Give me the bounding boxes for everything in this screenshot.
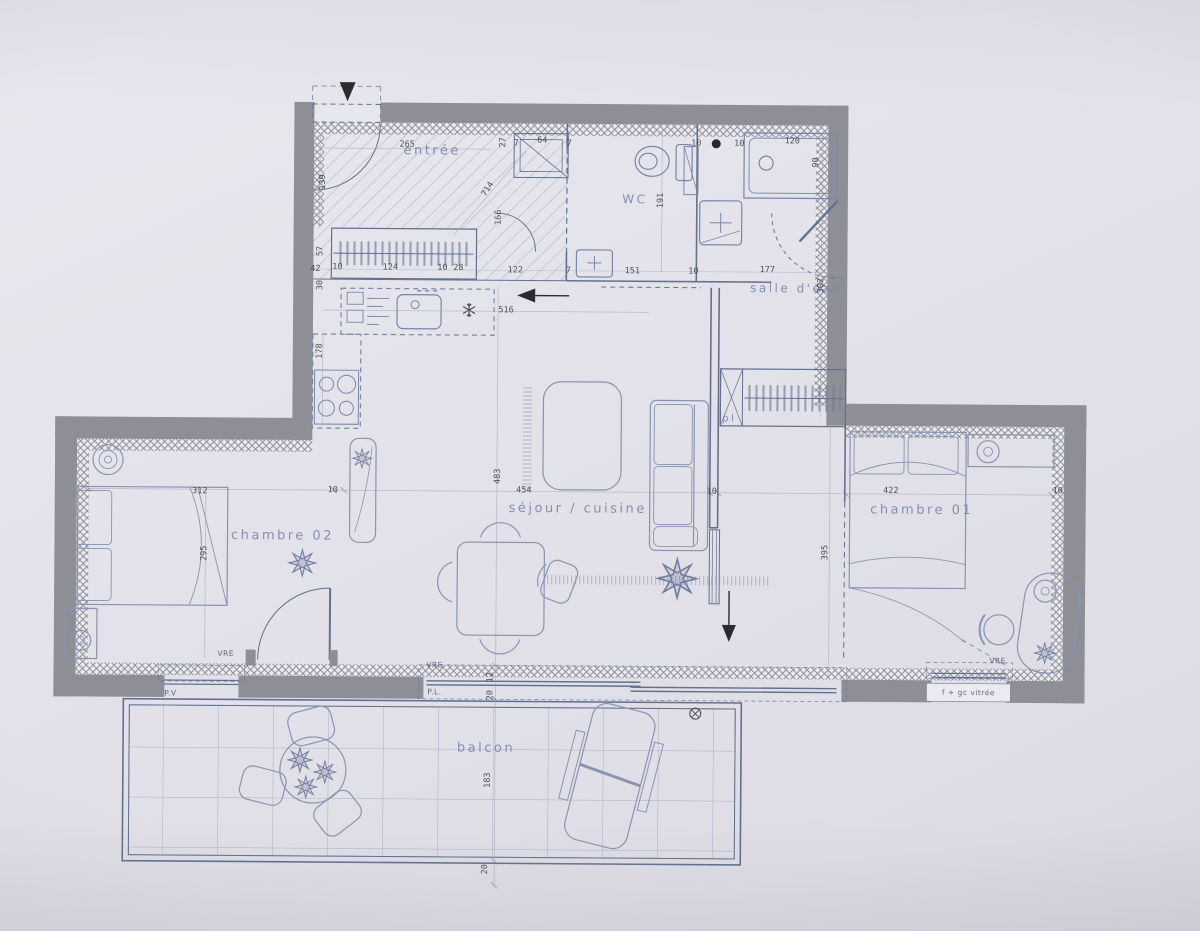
wc-washbasin-symbol bbox=[576, 250, 612, 277]
hall-arrow-icon bbox=[517, 288, 569, 302]
floorplan-drawing bbox=[0, 0, 1200, 931]
chambre01-furniture bbox=[849, 432, 1085, 677]
balcony bbox=[122, 694, 741, 865]
outer-walls bbox=[53, 100, 1088, 703]
desk-chair-symbol bbox=[979, 615, 1013, 645]
dining-table-symbol bbox=[437, 522, 580, 654]
sejour-furniture bbox=[437, 381, 772, 656]
bathroom-washbasin-symbol bbox=[700, 201, 742, 245]
sofa-symbol bbox=[649, 400, 708, 550]
door-chambre02 bbox=[246, 588, 339, 667]
corridor-radiator bbox=[709, 530, 720, 604]
shelf-symbol bbox=[968, 435, 1054, 468]
fridge-snowflake-icon bbox=[463, 303, 475, 317]
rug bbox=[543, 382, 622, 491]
window-chambre01 bbox=[926, 662, 1012, 702]
salle-deau-fixtures bbox=[684, 133, 838, 246]
bed-chambre01-symbol bbox=[849, 432, 966, 643]
wc-fixtures bbox=[576, 144, 692, 278]
floorplan-photo: entréeWCsalle d'eauséjour / cuisinechamb… bbox=[0, 0, 1200, 931]
insulation-hatch bbox=[76, 120, 1067, 681]
chambre01-arrow-icon bbox=[722, 591, 736, 642]
entry-arrow-icon bbox=[340, 82, 356, 101]
dimension-dot bbox=[712, 139, 721, 148]
chambre02-furniture bbox=[65, 436, 377, 666]
floorplan-canvas: entréeWCsalle d'eauséjour / cuisinechamb… bbox=[0, 0, 1200, 931]
